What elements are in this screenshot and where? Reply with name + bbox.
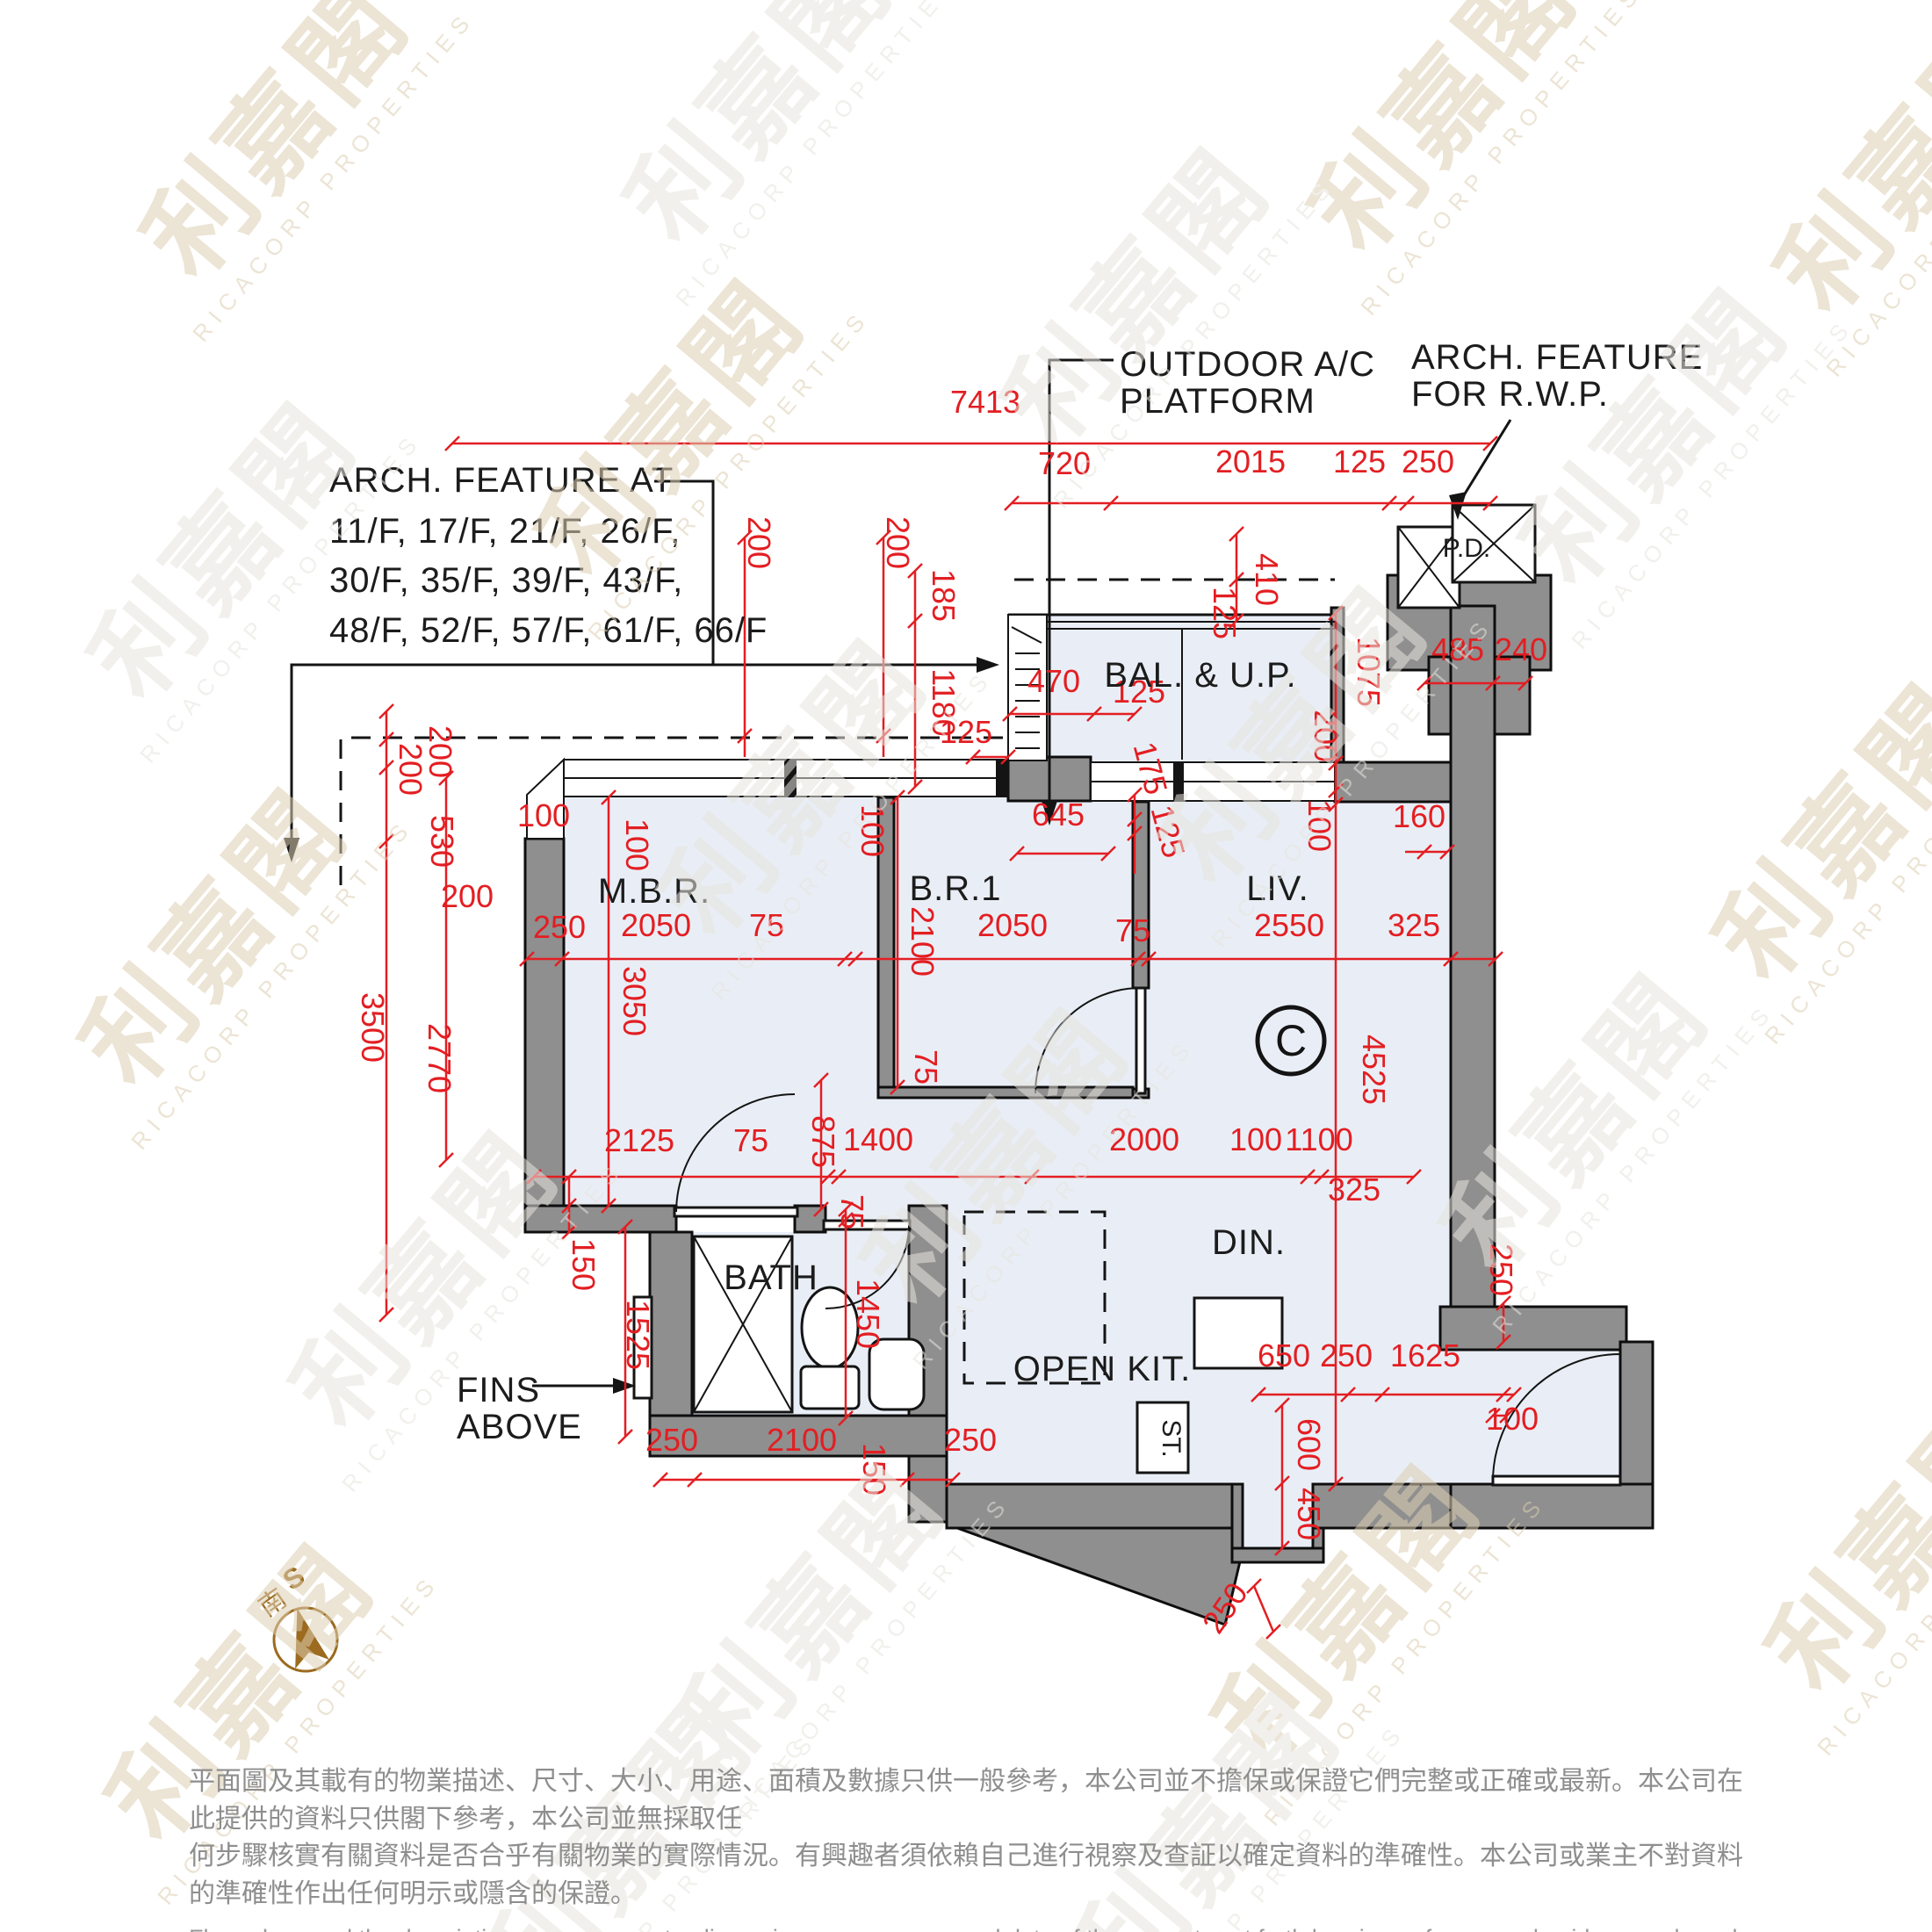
- floor-plan-drawing: 7413720201512525018511801254701254101251…: [0, 0, 1932, 1932]
- dimension-label: 125: [1207, 587, 1243, 639]
- dimension-label: 1525: [620, 1300, 656, 1370]
- mbr-door-leaf: [674, 1207, 797, 1216]
- dimension-label: 200: [393, 743, 429, 796]
- dimension-label: 250: [645, 1422, 698, 1458]
- dimension-label: 530: [424, 815, 460, 868]
- dimension-label: 470: [1027, 663, 1080, 699]
- dimension-label: 160: [1393, 798, 1445, 834]
- disclaimer-zh-line: 何步驟核實有關資料是否合乎有關物業的實際情況。有興趣者須依賴自己進行視察及查証以…: [189, 1838, 1761, 1913]
- dimension-label: 3050: [616, 966, 652, 1036]
- dimension-label: 200: [880, 516, 916, 569]
- room-label-open-kit: OPEN KIT.: [1013, 1350, 1191, 1388]
- dimension-label: 75: [749, 907, 784, 943]
- arch-feature-rwp-label: FOR R.W.P.: [1411, 375, 1609, 414]
- dimension-label: 100: [1301, 799, 1337, 852]
- dimension-label: 2770: [422, 1023, 458, 1093]
- dimension-label: 125: [940, 714, 992, 750]
- arch-feature-at-floors: 30/F, 35/F, 39/F, 43/F,: [329, 561, 683, 600]
- dimension-label: 250: [1402, 443, 1454, 479]
- dimension-label: 3500: [355, 992, 391, 1063]
- fins-above-label: ABOVE: [457, 1408, 582, 1446]
- dimension-label: 450: [1291, 1488, 1327, 1540]
- dimension-label: 4525: [1356, 1034, 1392, 1105]
- room-label-pd: P.D.: [1443, 534, 1490, 563]
- dimension-label: 2050: [977, 907, 1048, 943]
- dimension-label: 720: [1038, 445, 1091, 481]
- dimension-label: 2015: [1215, 443, 1286, 479]
- br1-door-leaf: [1136, 988, 1145, 1093]
- outdoor-ac-label: PLATFORM: [1120, 382, 1316, 421]
- dimension-label: 2000: [1109, 1121, 1179, 1157]
- arch-feature-at-title: ARCH. FEATURE AT: [329, 461, 674, 500]
- dimension-label: 325: [1328, 1171, 1381, 1207]
- dimension-label: 75: [908, 1049, 944, 1085]
- dimension-label: 240: [1495, 631, 1547, 667]
- dimension-label: 100: [1229, 1121, 1282, 1157]
- dimension-label: 2100: [767, 1422, 837, 1458]
- dimension-label: 100: [1486, 1401, 1539, 1437]
- dimension-label: 650: [1258, 1337, 1310, 1373]
- dimension-label: 1100: [1285, 1121, 1352, 1157]
- diagonal-dimension: [1247, 1579, 1280, 1639]
- floor-plan-page: 7413720201512525018511801254701254101251…: [0, 0, 1932, 1932]
- toilet: [802, 1287, 858, 1368]
- arch-feature-at-floors: 48/F, 52/F, 57/F, 61/F, 66/F: [329, 611, 768, 650]
- basin: [869, 1339, 924, 1409]
- dimension-label: 2550: [1254, 907, 1324, 943]
- dimension-label: 100: [854, 804, 890, 857]
- room-label-liv: LIV.: [1246, 869, 1308, 908]
- outdoor-ac-label: OUTDOOR A/C: [1120, 345, 1375, 384]
- dimension-label: 7413: [950, 384, 1020, 420]
- dimension-label: 410: [1249, 553, 1285, 606]
- arch-feature-rwp-label: ARCH. FEATURE: [1411, 338, 1703, 377]
- disclaimer-zh-line: 平面圖及其載有的物業描述、尺寸、大小、用途、面積及數據只供一般參考，本公司並不擔…: [189, 1763, 1761, 1838]
- room-label-mbr: M.B.R.: [598, 872, 710, 911]
- room-label-din: DIN.: [1212, 1223, 1286, 1262]
- dimension-label: 185: [926, 569, 962, 622]
- dimension-label: 150: [856, 1443, 892, 1496]
- dimension-label: 1075: [1351, 637, 1387, 707]
- dimension-label: 75: [834, 1194, 870, 1229]
- dimension-label: 250: [944, 1422, 997, 1458]
- room-label-bal: BAL. & U.P.: [1104, 656, 1296, 695]
- compass: S 南: [254, 1560, 337, 1671]
- leader-arrow-down: [284, 838, 299, 862]
- dimension-label: 100: [517, 797, 570, 833]
- dimension-label: 125: [1333, 443, 1386, 479]
- leader-arrow-right: [977, 657, 999, 673]
- disclaimer: 平面圖及其載有的物業描述、尺寸、大小、用途、面積及數據只供一般參考，本公司並不擔…: [189, 1763, 1761, 1932]
- dimension-label: 150: [566, 1238, 602, 1291]
- dimension-label: 250: [533, 909, 586, 945]
- dimension-label: 200: [741, 516, 777, 569]
- dimension-label: 200: [1308, 710, 1344, 762]
- dimension-label: 250: [1483, 1244, 1519, 1296]
- dimension-label: 1625: [1390, 1337, 1460, 1373]
- fins-above-label: FINS: [457, 1371, 540, 1409]
- dimension-label: 75: [733, 1122, 768, 1158]
- dimension-label: 200: [441, 878, 494, 914]
- room-label-bath: BATH: [724, 1258, 818, 1297]
- dimension-label: 325: [1388, 907, 1440, 943]
- dimension-label: 2125: [604, 1122, 674, 1158]
- dimension-label: 1450: [850, 1279, 886, 1349]
- disclaimer-en-line: Floor plans and the description, measure…: [189, 1923, 1761, 1932]
- dimension-label: 2100: [905, 906, 941, 977]
- entrance-door-leaf: [1493, 1476, 1620, 1485]
- dimension-label: 1400: [843, 1121, 913, 1157]
- dimension-label: 875: [805, 1115, 841, 1168]
- dimension-label: 645: [1032, 797, 1085, 833]
- arch-feature-at-floors: 11/F, 17/F, 21/F, 26/F,: [329, 512, 681, 551]
- dimension-label: 485: [1431, 631, 1484, 667]
- dimension-label: 250: [1320, 1337, 1373, 1373]
- unit-letter: C: [1275, 1016, 1307, 1065]
- room-label-br1: B.R.1: [909, 869, 1001, 908]
- dimension-label: 600: [1291, 1418, 1327, 1471]
- room-label-st: ST.: [1157, 1419, 1186, 1457]
- dimension-label: 75: [1115, 912, 1150, 948]
- compass-south-letter: S: [277, 1560, 310, 1597]
- dimension-label: 100: [619, 818, 655, 871]
- dimension-label: 2050: [621, 907, 691, 943]
